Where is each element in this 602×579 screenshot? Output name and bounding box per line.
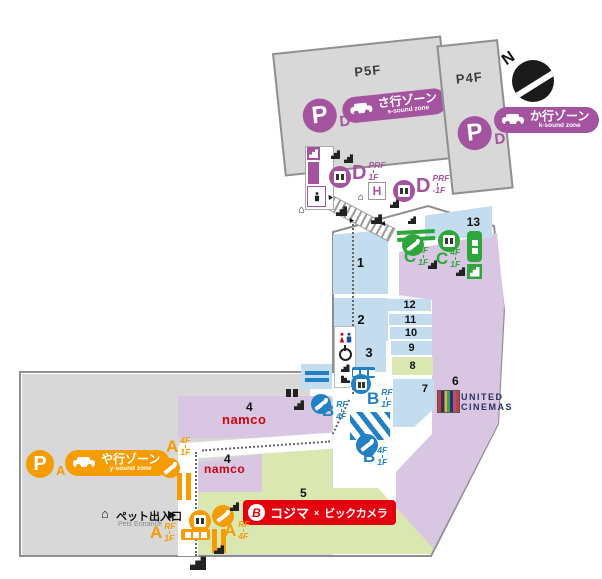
accessible-toilet-box [307,186,326,207]
car-icon [73,456,95,469]
label-b-elevator: B RF1F [367,390,393,408]
pets-entrance-icon: ⌂ [101,506,109,521]
label-a-elevator: A RF1F [150,524,176,542]
stairs-icon [309,149,318,158]
escalator-shaft-orange-upper [177,473,191,500]
label-c-escalator: C 4F1F [404,248,428,266]
vending-machine-icon [293,389,298,397]
mall-floor-map: P5F P D さ行ゾーンs-sound zone P4F P D か行ゾーンk… [0,0,602,579]
elevator-d-upper-icon[interactable] [329,166,351,188]
biccamera-label: ビックカメラ [324,505,387,521]
stairs-box-green [467,264,482,279]
block-10[interactable]: 10 [390,327,432,339]
block-1[interactable]: 1 [333,230,388,294]
restroom-icon [339,331,352,345]
stairs-box-purple [307,147,320,160]
block-8[interactable]: 8 [392,357,433,375]
label-c-elevator: C 4F1F [436,250,460,268]
parking-p-a: P A [26,450,65,478]
united-cinemas-label: UNITEDCINEMAS [461,392,513,413]
zone-badge-y-sound: や行ゾーンy-sound zone [65,450,170,476]
elevator-bank-orange [181,529,210,540]
block-5-number: 5 [300,486,307,500]
label-b-escalator-lower: B 4F1F [363,448,387,466]
block-11[interactable]: 11 [389,314,432,325]
namco-logo-upper: namco [222,412,266,427]
ramp-icon [341,375,350,383]
kojima-biccamera-badge: B コジマ × ビックカメラ [243,500,396,525]
block-12[interactable]: 12 [388,299,431,311]
wheelchair-icon [339,348,352,361]
label-a-escalator: A 4F1F [166,438,190,456]
zone-name-jp: や行ゾーン [101,453,160,465]
block-9[interactable]: 9 [391,341,432,355]
shaft-purple [308,162,319,184]
zone-name-en: y-sound zone [110,466,152,473]
route-dots-south [195,452,197,556]
parking-letter: A [56,463,65,478]
united-cinemas-logo-icon [437,390,460,413]
vending-machine-icon [286,389,291,397]
elevator-bank-green [467,231,482,262]
stairs-icon [341,364,350,372]
house-icon: ⌂ [358,192,364,203]
label-a-escalator2: A RF4F [224,522,250,540]
x-mark: × [314,508,319,518]
stairs-icon [305,368,329,385]
person-icon [314,192,318,202]
label-b-escalator-upper: B RF4F [322,402,348,420]
kojima-label: コジマ [270,503,309,522]
parking-icon: P [26,450,54,478]
label-d-upper: D PRF1F [352,163,385,183]
block-6-number: 6 [452,374,459,388]
block-3[interactable]: 3 [352,332,386,372]
stairs-box-blue [301,364,332,389]
elevator-d-lower-icon[interactable] [393,180,415,202]
bic-camera-logo-icon: B [248,504,265,521]
namco-logo-lower: namco [204,462,245,476]
pets-entrance-arrow-icon: ▶ [168,508,176,521]
h-connector-box: H [368,182,386,200]
house-icon: ⌂ [298,204,305,216]
label-d-lower: D PRF-1F [416,176,449,196]
